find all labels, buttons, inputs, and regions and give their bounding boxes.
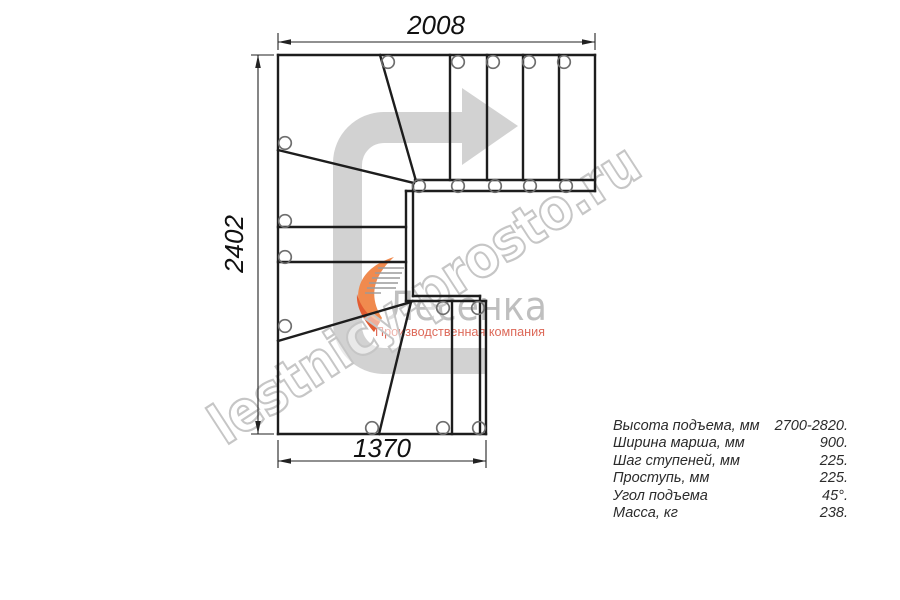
dimension-top: 2008 [278, 10, 595, 50]
spec-label: Ширина марша, мм [613, 435, 745, 452]
spec-label: Угол подъема [613, 488, 708, 505]
dim-arrowhead-icon [278, 39, 291, 45]
spec-row: Шаг ступеней, мм225. [613, 453, 848, 470]
spec-value: 225. [820, 453, 848, 470]
dim-arrowhead-icon [278, 458, 291, 464]
screw-hole-circle [279, 137, 292, 150]
spec-row: Высота подъема, мм2700-2820. [613, 418, 848, 435]
screw-hole-circle [452, 56, 465, 69]
screw-hole-circle [487, 56, 500, 69]
screw-hole-circle [437, 422, 450, 435]
spec-value: 900. [820, 435, 848, 452]
spec-value: 238. [820, 505, 848, 522]
dimension-top-value: 2008 [406, 10, 465, 40]
spec-label: Проступь, мм [613, 470, 709, 487]
spec-table: Высота подъема, мм2700-2820.Ширина марша… [613, 418, 848, 522]
dim-arrowhead-icon [255, 55, 261, 68]
screw-hole-circle [279, 320, 292, 333]
dimension-bottom: 1370 [278, 433, 486, 468]
spec-row: Ширина марша, мм900. [613, 435, 848, 452]
spec-row: Проступь, мм225. [613, 470, 848, 487]
spec-row: Угол подъема45°. [613, 488, 848, 505]
dimension-bottom-value: 1370 [353, 433, 411, 463]
dimension-left-value: 2402 [219, 215, 249, 274]
spec-label: Масса, кг [613, 505, 678, 522]
spec-row: Масса, кг238. [613, 505, 848, 522]
spec-label: Высота подъема, мм [613, 418, 760, 435]
spec-value: 225. [820, 470, 848, 487]
spec-value: 45°. [822, 488, 848, 505]
screw-hole-circle [382, 56, 395, 69]
spec-label: Шаг ступеней, мм [613, 453, 740, 470]
screw-hole-circle [523, 56, 536, 69]
dim-arrowhead-icon [473, 458, 486, 464]
screw-hole-circle [279, 215, 292, 228]
technical-drawing-page: Лесенка Производственная компания lestni… [0, 0, 900, 600]
dim-arrowhead-icon [582, 39, 595, 45]
spec-value: 2700-2820. [775, 418, 848, 435]
